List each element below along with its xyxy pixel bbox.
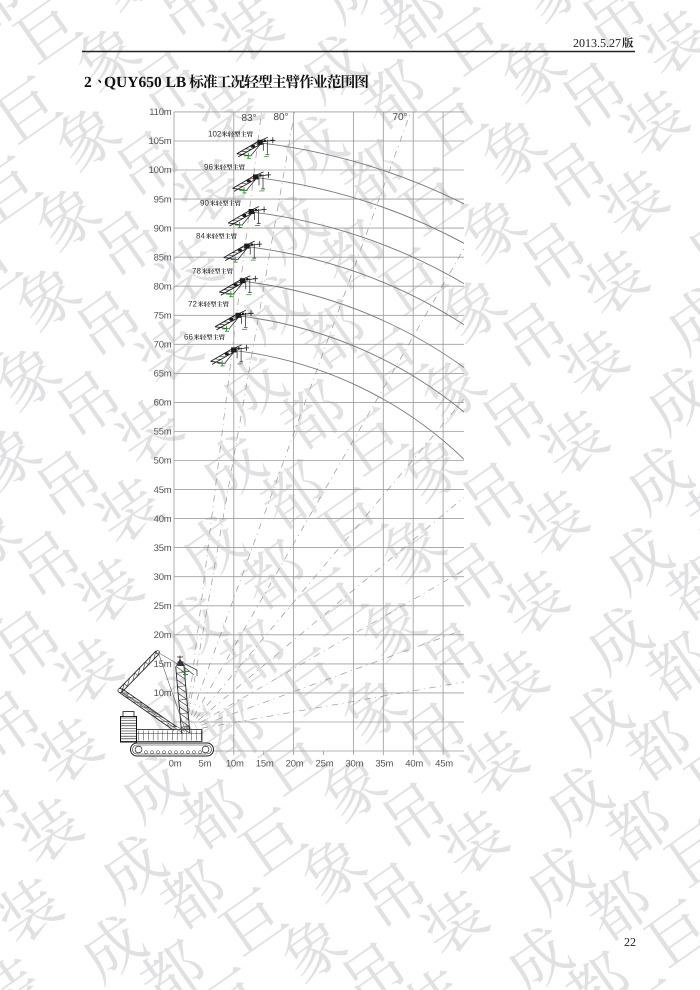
svg-text:2013.5.27: 2013.5.27 (573, 36, 621, 50)
svg-text:45m: 45m (435, 759, 453, 770)
svg-text:10m: 10m (226, 759, 244, 770)
svg-text:78: 78 (192, 267, 201, 276)
svg-text:5m: 5m (198, 759, 211, 770)
svg-text:102: 102 (208, 130, 222, 139)
svg-text:65m: 65m (154, 369, 172, 380)
svg-text:40m: 40m (405, 759, 423, 770)
svg-text:80°: 80° (273, 112, 288, 123)
svg-text:55m: 55m (154, 427, 172, 438)
svg-text:25m: 25m (316, 759, 334, 770)
svg-text:35m: 35m (375, 759, 393, 770)
svg-text:66: 66 (184, 333, 193, 342)
svg-text:100m: 100m (149, 165, 172, 176)
svg-text:84: 84 (196, 232, 205, 241)
svg-text:30m: 30m (154, 572, 172, 583)
svg-text:30m: 30m (345, 759, 363, 770)
svg-text:70m: 70m (154, 340, 172, 351)
svg-text:70°: 70° (392, 112, 407, 123)
svg-text:20m: 20m (286, 759, 304, 770)
svg-text:90: 90 (200, 199, 209, 208)
svg-text:22: 22 (624, 935, 636, 949)
svg-text:72: 72 (188, 300, 197, 309)
svg-text:0m: 0m (169, 759, 182, 770)
svg-text:QUY650 LB: QUY650 LB (104, 74, 186, 91)
svg-text:35m: 35m (154, 543, 172, 554)
svg-text:90m: 90m (154, 223, 172, 234)
svg-text:96: 96 (204, 163, 213, 172)
svg-text:15m: 15m (256, 759, 274, 770)
svg-text:20m: 20m (154, 630, 172, 641)
svg-text:60m: 60m (154, 398, 172, 409)
svg-text:85m: 85m (154, 252, 172, 263)
svg-text:110m: 110m (149, 107, 172, 118)
svg-text:10m: 10m (154, 688, 172, 699)
svg-text:75m: 75m (154, 311, 172, 322)
svg-text:95m: 95m (154, 194, 172, 205)
svg-text:80m: 80m (154, 281, 172, 292)
svg-text:50m: 50m (154, 456, 172, 467)
svg-text:40m: 40m (154, 514, 172, 525)
svg-text:2: 2 (84, 74, 92, 91)
svg-text:45m: 45m (154, 485, 172, 496)
svg-text:105m: 105m (149, 136, 172, 147)
svg-text:83°: 83° (241, 113, 256, 124)
svg-text:25m: 25m (154, 601, 172, 612)
